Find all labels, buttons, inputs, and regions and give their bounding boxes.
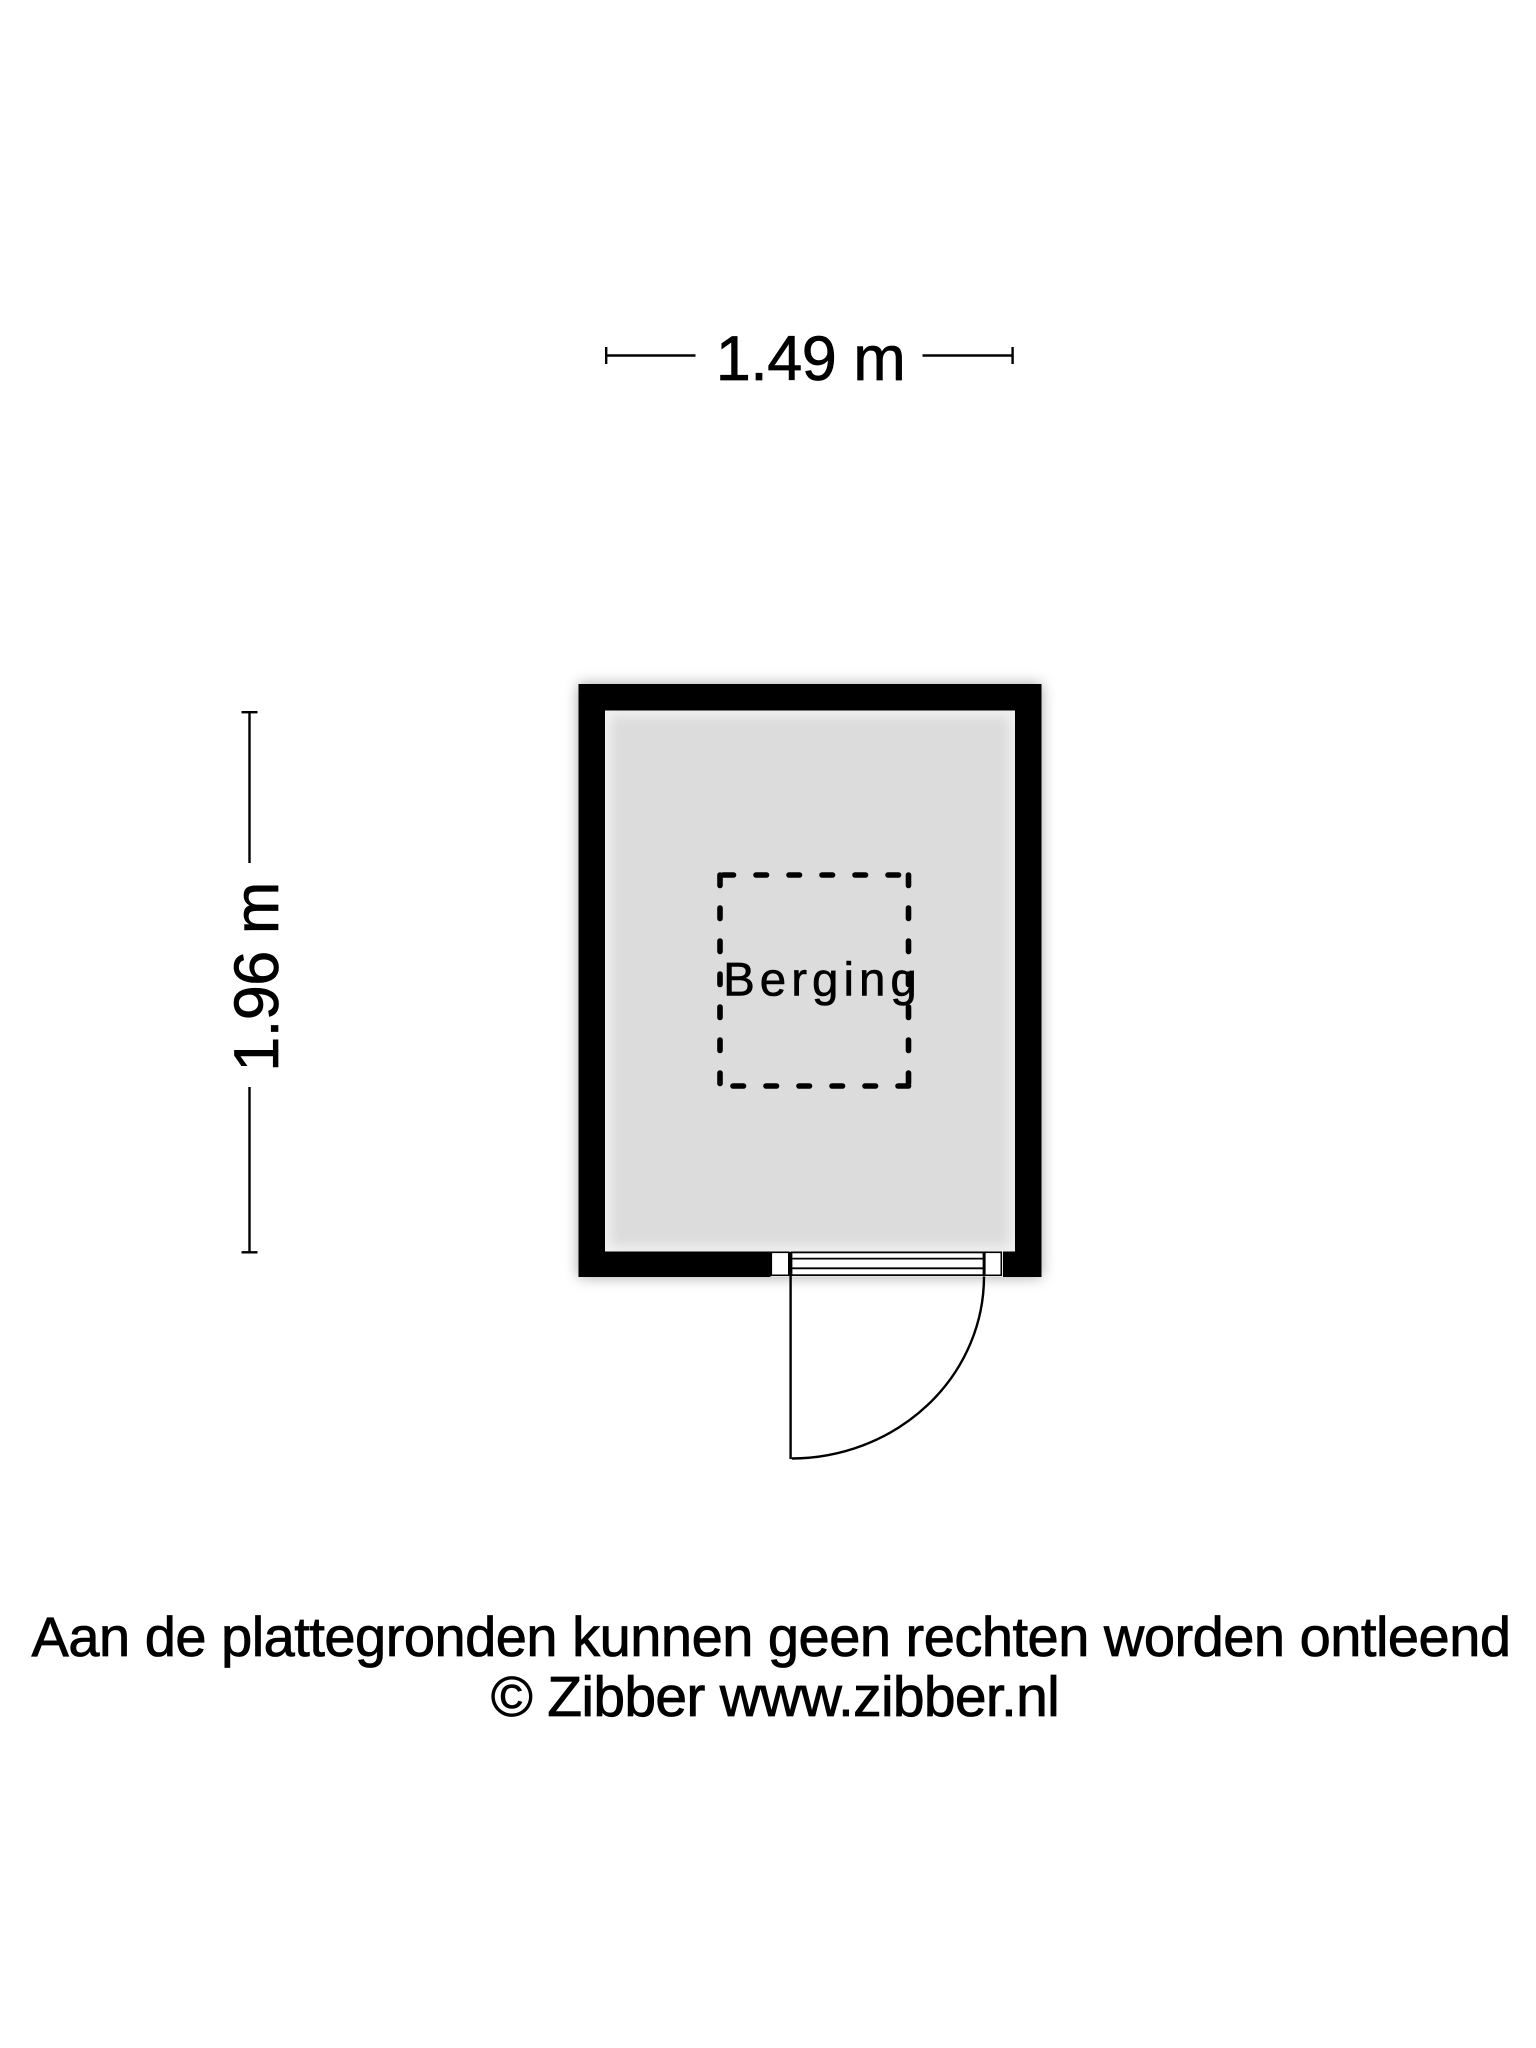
svg-text:Aan de plattegronden kunnen ge: Aan de plattegronden kunnen geen rechten… [32, 1605, 1511, 1668]
svg-text:1.49 m: 1.49 m [716, 324, 906, 394]
svg-text:1.96 m: 1.96 m [222, 882, 292, 1072]
svg-text:© Zibber www.zibber.nl: © Zibber www.zibber.nl [491, 1665, 1059, 1729]
svg-text:Berging: Berging [723, 954, 922, 1007]
